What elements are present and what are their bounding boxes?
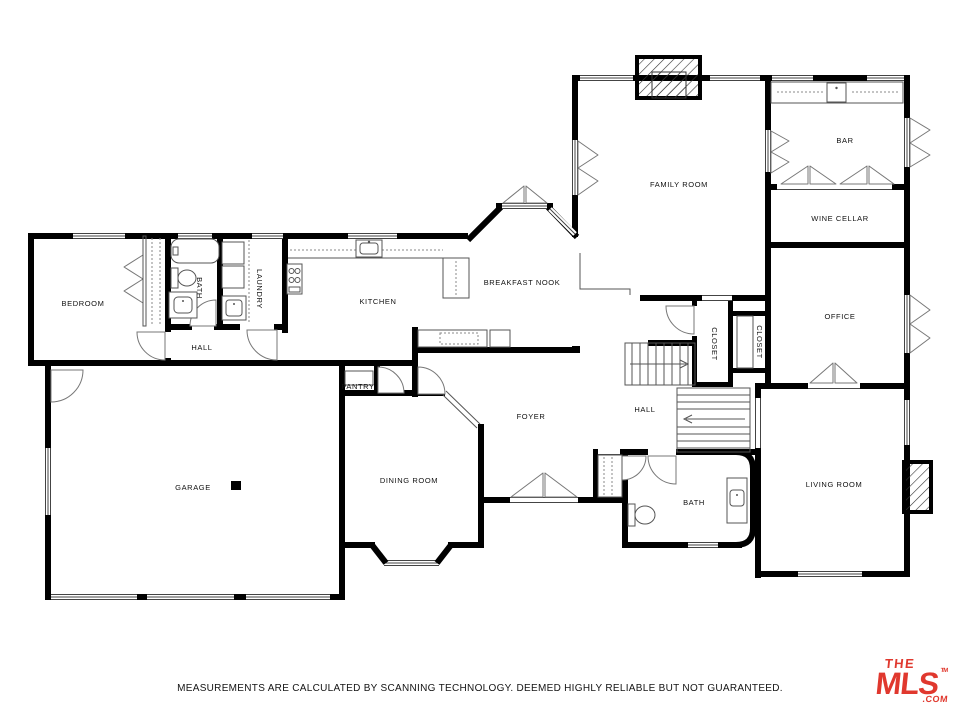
mls-logo: THE MLSTM .COM	[874, 657, 957, 704]
stair-arrow-up	[630, 360, 688, 368]
stairs-lower-run	[677, 388, 750, 452]
casement-window-icon	[910, 143, 930, 167]
entry-threshold	[510, 497, 578, 503]
window	[348, 233, 397, 239]
garage-side-door	[51, 370, 83, 402]
french-door-icon	[503, 186, 524, 203]
room-label-family-room: FAMILY ROOM	[650, 180, 708, 189]
hall-closet-door	[622, 456, 646, 480]
fireplace	[904, 462, 931, 512]
laundry-sink	[222, 296, 246, 320]
opening	[702, 295, 732, 301]
window	[178, 233, 212, 239]
kitchen-counter	[288, 258, 443, 298]
bath2-door	[648, 456, 676, 484]
foyer-closet	[598, 455, 622, 497]
pantry-door	[378, 367, 404, 393]
casement-window-icon	[578, 168, 598, 195]
room-label-bedroom: BEDROOM	[62, 299, 105, 308]
casement-window-icon	[771, 152, 789, 173]
bay-wall-left	[468, 207, 501, 240]
room-label-garage: GARAGE	[175, 483, 211, 492]
room-label-pantry: PANTRY	[341, 382, 374, 391]
closet1-door	[666, 306, 694, 334]
laundry-door	[247, 330, 277, 360]
room-label-dining-room: DINING ROOM	[380, 476, 438, 485]
garage-post	[231, 481, 241, 490]
cased-opening	[443, 391, 480, 428]
casement-window-icon	[771, 131, 789, 152]
window	[772, 75, 813, 81]
cased-opening	[755, 398, 761, 448]
casement-window-icon	[910, 324, 930, 353]
disclaimer-text: MEASUREMENTS ARE CALCULATED BY SCANNING …	[0, 683, 960, 694]
office-door-icon	[810, 363, 833, 383]
closet-bifold-icon	[124, 279, 143, 303]
garage-door	[51, 594, 137, 600]
room-label-kitchen: KITCHEN	[359, 297, 396, 306]
room-label-bath1: BATH	[195, 277, 204, 299]
window	[904, 118, 910, 167]
french-door-icon	[781, 166, 808, 184]
stair-arrow-down	[684, 415, 745, 423]
french-door-icon	[810, 166, 836, 184]
window	[550, 209, 575, 234]
entry-door-icon	[545, 473, 577, 497]
window	[45, 448, 51, 515]
french-door-icon	[840, 166, 867, 184]
floor-step	[580, 253, 630, 295]
room-label-living-room: LIVING ROOM	[806, 480, 863, 489]
window	[252, 233, 283, 239]
window	[904, 400, 910, 445]
closet-bifold-icon	[124, 255, 143, 279]
kitchen-door	[418, 367, 445, 394]
room-label-laundry: LAUNDRY	[255, 269, 264, 309]
room-label-bath2: BATH	[683, 498, 705, 507]
french-door-icon	[526, 186, 547, 203]
room-label-foyer: FOYER	[517, 412, 546, 421]
window	[384, 560, 439, 566]
closet-track	[143, 236, 146, 326]
toilet	[171, 268, 196, 288]
room-label-closet2: CLOSET	[755, 325, 764, 359]
sink-vanity	[169, 292, 197, 318]
french-door-icon	[869, 166, 894, 184]
stove	[287, 264, 302, 294]
garage-door	[246, 594, 330, 600]
casement-window-icon	[578, 141, 598, 168]
opening	[808, 383, 860, 389]
washer	[222, 242, 244, 264]
kitchen-sink	[356, 240, 382, 257]
fireplace	[637, 57, 700, 98]
window	[580, 75, 633, 81]
island-counter	[418, 330, 510, 347]
garage-door	[147, 594, 234, 600]
opening	[777, 184, 892, 190]
room-label-office: OFFICE	[824, 312, 855, 321]
floor-plan: BEDROOM BATH LAUNDRY HALL KITCHEN BREAKF…	[0, 0, 960, 720]
room-label-hall1: HALL	[191, 343, 212, 352]
trademark-symbol: TM	[940, 668, 947, 674]
room-label-wine-cellar: WINE CELLAR	[811, 214, 868, 223]
stairs-upper-run	[625, 343, 695, 385]
room-label-hall2: HALL	[634, 405, 655, 414]
casement-window-icon	[910, 295, 930, 324]
window	[688, 542, 718, 548]
opening	[598, 449, 620, 455]
office-door-icon	[835, 363, 857, 383]
room-label-closet1: CLOSET	[710, 327, 719, 361]
window	[904, 295, 910, 353]
mls-logo-mls: MLSTM	[874, 668, 955, 699]
bedroom-door	[137, 332, 165, 360]
window	[710, 75, 760, 81]
casement-window-icon	[910, 118, 930, 143]
window	[867, 75, 904, 81]
toilet	[628, 504, 655, 526]
closet-shelf	[737, 316, 753, 368]
sink-vanity	[727, 478, 747, 523]
dining-bay-diag	[372, 545, 386, 563]
bar-counter	[771, 82, 903, 103]
room-label-bar: BAR	[836, 136, 853, 145]
dryer	[222, 266, 244, 288]
room-label-breakfast-nook: BREAKFAST NOOK	[484, 278, 561, 287]
window	[572, 140, 578, 195]
entry-door-icon	[511, 473, 543, 497]
floor-plan-page: BEDROOM BATH LAUNDRY HALL KITCHEN BREAKF…	[0, 0, 960, 720]
window	[73, 233, 125, 239]
window	[502, 203, 547, 209]
window	[765, 130, 771, 172]
window	[798, 571, 862, 577]
dining-bay-diag	[437, 545, 451, 563]
